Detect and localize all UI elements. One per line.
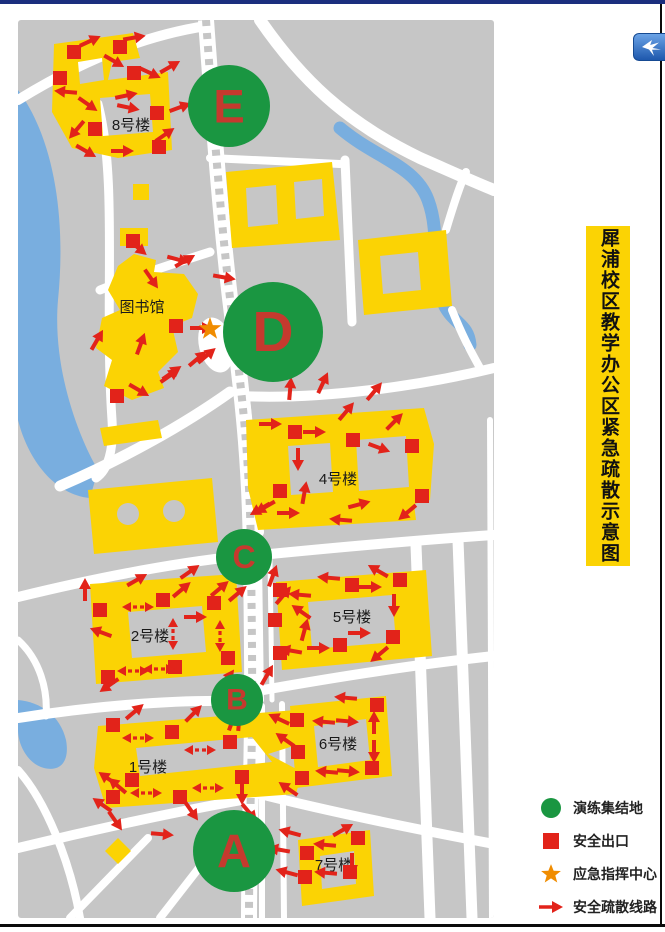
- safety-exit-marker: [152, 140, 166, 154]
- legend-item-assembly: 演练集结地: [538, 797, 664, 819]
- assembly-letter: C: [232, 539, 255, 575]
- safety-exit-marker: [67, 45, 81, 59]
- safety-exit-marker: [88, 122, 102, 136]
- safety-exit-marker: [113, 40, 127, 54]
- safety-exit-marker: [268, 613, 282, 627]
- legend-label: 应急指挥中心: [573, 864, 657, 884]
- safety-exit-marker: [165, 725, 179, 739]
- page-top-border: [0, 0, 665, 4]
- assembly-point-D: D: [223, 282, 323, 382]
- safety-exit-marker: [125, 773, 139, 787]
- safety-exit-marker: [386, 630, 400, 644]
- safety-exit-marker: [207, 596, 221, 610]
- safety-exit-marker: [365, 761, 379, 775]
- safety-exit-marker: [298, 870, 312, 884]
- map-layers: 8号楼图书馆4号楼2号楼5号楼1号楼6号楼7号楼 EDCBA: [18, 20, 494, 918]
- assembly-point-A: A: [193, 810, 275, 892]
- hummingbird-app-icon[interactable]: [633, 33, 665, 61]
- safety-exit-marker: [290, 713, 304, 727]
- safety-exit-marker: [169, 319, 183, 333]
- assembly-circle-icon: [538, 797, 564, 819]
- safety-exit-marker: [106, 790, 120, 804]
- exit-square-icon: [538, 830, 564, 852]
- campus-map: 8号楼图书馆4号楼2号楼5号楼1号楼6号楼7号楼 EDCBA: [0, 0, 665, 932]
- evacuation-map-page: 8号楼图书馆4号楼2号楼5号楼1号楼6号楼7号楼 EDCBA 犀浦校区教学办公区…: [0, 0, 665, 932]
- safety-exit-marker: [351, 831, 365, 845]
- safety-exit-marker: [393, 573, 407, 587]
- legend-label: 安全出口: [573, 831, 629, 851]
- safety-exit-marker: [150, 106, 164, 120]
- safety-exit-marker: [300, 846, 314, 860]
- legend-item-route: 安全疏散线路: [538, 896, 664, 918]
- route-arrow-icon: [538, 896, 564, 918]
- safety-exit-marker: [333, 638, 347, 652]
- assembly-letter: B: [226, 684, 248, 717]
- safety-exit-marker: [127, 66, 141, 80]
- safety-exit-marker: [93, 603, 107, 617]
- safety-exit-marker: [345, 578, 359, 592]
- assembly-letter: E: [213, 80, 244, 133]
- safety-exit-marker: [106, 718, 120, 732]
- building-label: 6号楼: [319, 736, 357, 753]
- command-star-icon: [538, 863, 564, 885]
- map-legend: 演练集结地 安全出口 应急指挥中心 安全疏散线路: [538, 797, 664, 929]
- assembly-point-E: E: [188, 65, 270, 147]
- legend-label: 演练集结地: [573, 798, 643, 818]
- legend-label: 安全疏散线路: [573, 897, 657, 917]
- safety-exit-marker: [273, 484, 287, 498]
- safety-exit-marker: [415, 489, 429, 503]
- assembly-point-B: B: [211, 674, 263, 726]
- safety-exit-marker: [53, 71, 67, 85]
- building-shape-left: [88, 478, 218, 554]
- legend-item-command: 应急指挥中心: [538, 863, 664, 885]
- building-label: 8号楼: [112, 117, 150, 134]
- hummingbird-glyph: [640, 36, 664, 58]
- safety-exit-marker: [110, 389, 124, 403]
- safety-exit-marker: [370, 698, 384, 712]
- assembly-letter: A: [217, 825, 251, 878]
- safety-exit-marker: [295, 771, 309, 785]
- safety-exit-marker: [223, 735, 237, 749]
- building-label: 2号楼: [131, 628, 169, 645]
- safety-exit-marker: [221, 651, 235, 665]
- safety-exit-marker: [288, 425, 302, 439]
- assembly-letter: D: [252, 300, 293, 364]
- safety-exit-marker: [405, 439, 419, 453]
- building-label: 4号楼: [319, 471, 357, 488]
- assembly-point-C: C: [216, 529, 272, 585]
- legend-item-exit: 安全出口: [538, 830, 664, 852]
- building-label: 5号楼: [333, 609, 371, 626]
- building-shape-small: [133, 184, 149, 200]
- map-title-banner: 犀浦校区教学办公区紧急疏散示意图: [586, 226, 630, 566]
- page-title: 犀浦校区教学办公区紧急疏散示意图: [586, 228, 630, 564]
- page-right-border: [660, 4, 662, 924]
- safety-exit-marker: [235, 770, 249, 784]
- safety-exit-marker: [346, 433, 360, 447]
- building-label: 图书馆: [119, 299, 164, 316]
- safety-exit-marker: [156, 593, 170, 607]
